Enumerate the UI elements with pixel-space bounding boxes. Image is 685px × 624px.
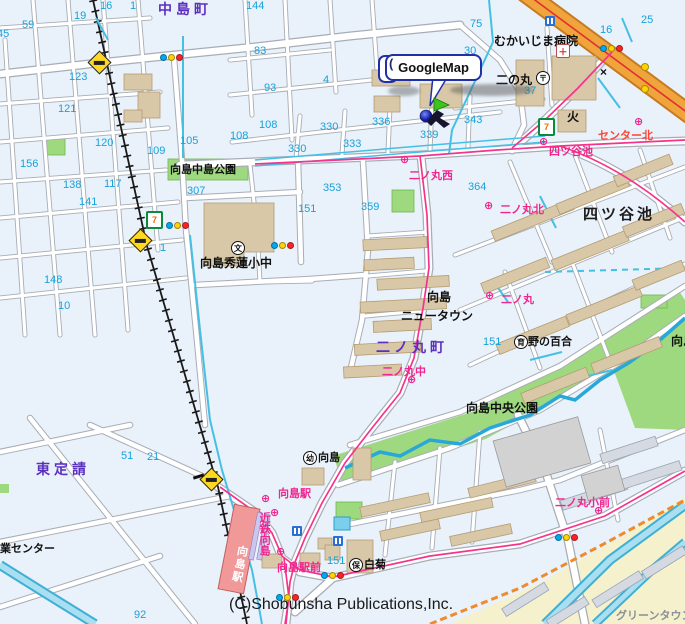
map-base bbox=[0, 0, 685, 624]
marker-shadow bbox=[450, 84, 534, 96]
marker-shadow bbox=[388, 86, 420, 96]
nursery-icon: 保 bbox=[349, 558, 363, 572]
school-icon: 文 bbox=[231, 241, 245, 255]
googlemap-balloon[interactable]: GoogleMap bbox=[385, 54, 482, 81]
map-canvas[interactable]: 中島町東定請二ノ丸町四ツ谷池むかいじま病院二の丸向島秀蓮小中向島ニュータウン向島… bbox=[0, 0, 685, 624]
park-pond bbox=[334, 517, 350, 530]
koban-icon: × bbox=[600, 65, 607, 79]
balloon-curl-icon: ( bbox=[389, 56, 393, 71]
care-home-icon: 育 bbox=[514, 335, 528, 349]
flag-icon bbox=[434, 98, 449, 111]
kindergarten-icon: 幼 bbox=[303, 451, 317, 465]
fire-station-icon: 火 bbox=[567, 108, 579, 125]
hospital-icon: ＋ bbox=[556, 44, 570, 58]
